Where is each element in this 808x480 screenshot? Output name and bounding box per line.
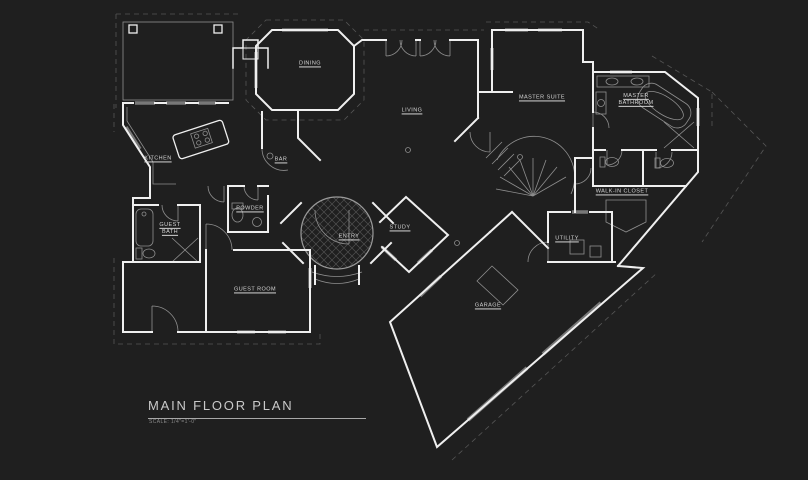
- floor-plan-sheet: DINING LIVING MASTER SUITE MASTER BATHRO…: [0, 0, 808, 480]
- room-label-study: STUDY: [390, 224, 411, 231]
- room-label-bar: BAR: [275, 156, 288, 163]
- sheet-scale-note: SCALE: 1/4"=1'-0": [149, 419, 197, 425]
- walls-layer: [123, 25, 698, 447]
- fixtures-layer: [123, 22, 695, 332]
- room-label-kitchen: KITCHEN: [144, 155, 171, 162]
- room-label-utility: UTILITY: [555, 235, 579, 242]
- floor-plan-drawing: [0, 0, 808, 480]
- room-label-master-bathroom: MASTER BATHROOM: [617, 93, 655, 107]
- overhang-layer: [114, 14, 766, 460]
- entry-tile-hatch: [301, 197, 373, 269]
- room-label-entry: ENTRY: [339, 233, 360, 240]
- sheet-title: MAIN FLOOR PLAN: [148, 398, 293, 413]
- sheet-title-block: MAIN FLOOR PLAN: [148, 397, 366, 419]
- room-label-master-suite: MASTER SUITE: [519, 94, 565, 101]
- room-label-guest-room: GUEST ROOM: [234, 286, 276, 293]
- room-label-garage: GARAGE: [475, 302, 501, 309]
- room-label-guest-bath: GUEST BATH: [157, 222, 183, 236]
- room-label-dining: DINING: [299, 60, 321, 67]
- room-label-powder: POWDER: [236, 205, 263, 212]
- room-label-walk-in-closet: WALK-IN CLOSET: [596, 188, 649, 195]
- room-label-living: LIVING: [402, 107, 423, 114]
